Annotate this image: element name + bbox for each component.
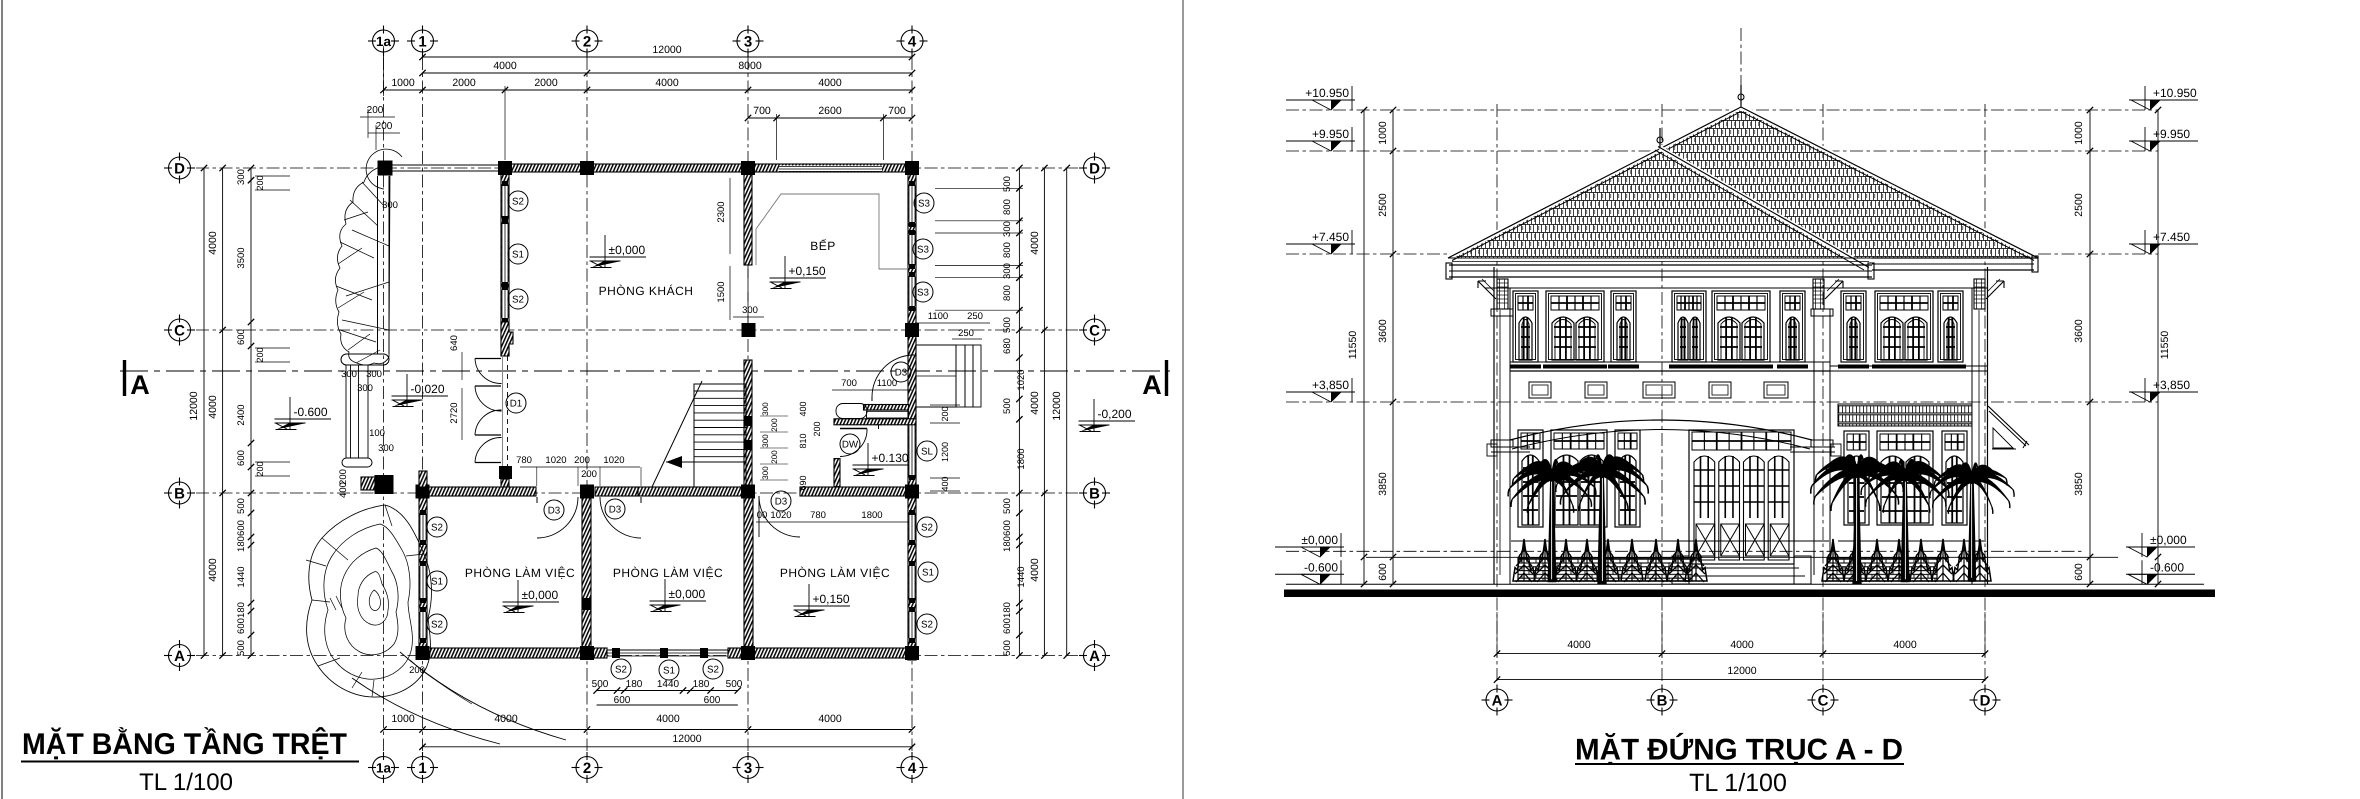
svg-text:1440: 1440 xyxy=(657,679,680,690)
svg-text:1000: 1000 xyxy=(2073,121,2085,145)
svg-text:4000: 4000 xyxy=(818,77,842,89)
svg-text:8000: 8000 xyxy=(738,60,762,72)
svg-text:200: 200 xyxy=(255,175,265,190)
svg-text:810: 810 xyxy=(798,433,808,448)
svg-text:S2: S2 xyxy=(431,523,443,534)
svg-text:4000: 4000 xyxy=(818,713,842,725)
svg-text:12000: 12000 xyxy=(188,391,200,420)
svg-text:±0,000: ±0,000 xyxy=(1301,533,1338,547)
svg-text:2: 2 xyxy=(583,760,591,777)
svg-text:DW: DW xyxy=(842,440,859,451)
svg-text:+3,850: +3,850 xyxy=(2153,378,2190,392)
svg-text:PHÒNG KHÁCH: PHÒNG KHÁCH xyxy=(599,284,694,298)
svg-text:700: 700 xyxy=(753,105,771,117)
svg-text:600: 600 xyxy=(1002,618,1013,634)
svg-text:12000: 12000 xyxy=(1051,391,1063,420)
svg-text:100: 100 xyxy=(369,428,385,439)
svg-text:+7.450: +7.450 xyxy=(1312,230,1349,244)
svg-text:3850: 3850 xyxy=(2073,472,2085,496)
svg-text:200: 200 xyxy=(812,421,822,436)
svg-text:300: 300 xyxy=(378,443,394,454)
svg-text:200: 200 xyxy=(409,665,425,676)
svg-text:PHÒNG LÀM VIỆC: PHÒNG LÀM VIỆC xyxy=(613,566,723,580)
svg-text:2720: 2720 xyxy=(449,402,460,423)
svg-text:2: 2 xyxy=(583,33,591,50)
svg-text:D: D xyxy=(1980,692,1991,709)
svg-text:3600: 3600 xyxy=(1377,319,1389,343)
svg-text:+10.950: +10.950 xyxy=(1305,86,1349,100)
svg-text:12000: 12000 xyxy=(1727,665,1756,677)
svg-text:A: A xyxy=(1142,370,1162,400)
svg-text:500: 500 xyxy=(592,679,609,690)
svg-text:D1: D1 xyxy=(510,399,523,410)
svg-text:TL 1/100: TL 1/100 xyxy=(1689,769,1787,797)
svg-text:250: 250 xyxy=(967,311,983,322)
svg-text:11550: 11550 xyxy=(1347,331,1359,360)
svg-text:400: 400 xyxy=(940,476,950,491)
svg-text:600: 600 xyxy=(1377,563,1389,581)
svg-text:+0.130: +0.130 xyxy=(872,451,909,465)
svg-text:4000: 4000 xyxy=(207,395,219,419)
svg-text:11550: 11550 xyxy=(2159,331,2171,360)
svg-text:2600: 2600 xyxy=(818,105,842,117)
svg-text:A: A xyxy=(174,648,185,665)
svg-text:1440: 1440 xyxy=(1016,566,1027,587)
svg-text:300: 300 xyxy=(761,434,770,448)
svg-text:300: 300 xyxy=(357,383,373,394)
svg-text:1000: 1000 xyxy=(391,77,415,89)
svg-text:4000: 4000 xyxy=(493,60,517,72)
svg-text:12000: 12000 xyxy=(672,733,701,745)
svg-text:4: 4 xyxy=(908,33,917,50)
svg-text:3600: 3600 xyxy=(2073,319,2085,343)
svg-text:A: A xyxy=(130,370,150,400)
svg-text:600: 600 xyxy=(614,695,631,706)
svg-text:MẶT BẰNG TẦNG TRỆT: MẶT BẰNG TẦNG TRỆT xyxy=(22,727,347,761)
svg-text:12000: 12000 xyxy=(652,44,681,56)
svg-text:1800: 1800 xyxy=(1016,448,1027,469)
svg-text:PHÒNG LÀM VIỆC: PHÒNG LÀM VIỆC xyxy=(780,566,890,580)
svg-text:2500: 2500 xyxy=(1377,193,1389,217)
svg-text:200: 200 xyxy=(770,418,779,432)
svg-text:S3: S3 xyxy=(918,199,931,210)
svg-text:±0,000: ±0,000 xyxy=(522,588,559,602)
svg-text:-0,020: -0,020 xyxy=(411,382,445,396)
svg-text:600: 600 xyxy=(2073,563,2085,581)
svg-text:2000: 2000 xyxy=(534,77,558,89)
svg-text:PHÒNG LÀM VIỆC: PHÒNG LÀM VIỆC xyxy=(465,566,575,580)
svg-text:4000: 4000 xyxy=(655,77,679,89)
svg-text:800: 800 xyxy=(1002,285,1013,301)
svg-text:B: B xyxy=(1089,485,1100,502)
svg-text:±0,000: ±0,000 xyxy=(669,587,706,601)
svg-text:S1: S1 xyxy=(663,666,675,677)
svg-text:200: 200 xyxy=(574,455,590,466)
svg-text:S2: S2 xyxy=(512,295,524,306)
svg-text:00: 00 xyxy=(757,510,768,521)
svg-text:500: 500 xyxy=(236,498,247,514)
svg-text:1100: 1100 xyxy=(877,378,897,389)
svg-text:250: 250 xyxy=(958,328,974,339)
svg-text:500: 500 xyxy=(236,640,247,656)
svg-text:500: 500 xyxy=(726,679,743,690)
svg-text:B: B xyxy=(1657,692,1668,709)
svg-text:+9.950: +9.950 xyxy=(2153,127,2190,141)
svg-text:1a: 1a xyxy=(376,760,392,775)
svg-text:1020: 1020 xyxy=(770,510,791,521)
svg-text:600: 600 xyxy=(236,329,247,345)
svg-text:TL 1/100: TL 1/100 xyxy=(139,769,233,796)
svg-text:680: 680 xyxy=(1002,338,1013,354)
svg-text:4: 4 xyxy=(908,760,917,777)
svg-text:1500: 1500 xyxy=(716,281,727,302)
svg-text:1: 1 xyxy=(418,760,426,777)
svg-text:180: 180 xyxy=(1002,602,1013,618)
svg-text:2500: 2500 xyxy=(2073,193,2085,217)
svg-text:S1: S1 xyxy=(512,250,524,261)
svg-text:S2: S2 xyxy=(921,620,933,631)
svg-text:200: 200 xyxy=(940,406,950,421)
svg-text:700: 700 xyxy=(888,105,906,117)
svg-text:C: C xyxy=(1089,322,1100,339)
svg-text:4000: 4000 xyxy=(1567,639,1591,651)
svg-text:S2: S2 xyxy=(615,665,627,676)
svg-text:1020: 1020 xyxy=(1016,369,1027,390)
svg-text:200: 200 xyxy=(770,450,779,464)
svg-text:4000: 4000 xyxy=(1029,391,1041,415)
svg-text:500: 500 xyxy=(1002,317,1013,333)
svg-text:3: 3 xyxy=(744,760,752,777)
svg-text:C: C xyxy=(1818,692,1829,709)
svg-text:4000: 4000 xyxy=(207,558,219,582)
svg-text:200: 200 xyxy=(367,105,384,116)
svg-text:180: 180 xyxy=(626,679,643,690)
svg-text:+10.950: +10.950 xyxy=(2153,86,2197,100)
svg-text:200: 200 xyxy=(255,347,265,362)
svg-text:4000: 4000 xyxy=(656,713,680,725)
svg-text:4000: 4000 xyxy=(1893,639,1917,651)
svg-text:500: 500 xyxy=(1002,498,1013,514)
svg-text:180: 180 xyxy=(236,536,247,552)
svg-text:1800: 1800 xyxy=(861,510,882,521)
svg-text:180: 180 xyxy=(1002,536,1013,552)
svg-text:-0.600: -0.600 xyxy=(1304,560,1338,574)
svg-text:3850: 3850 xyxy=(1377,472,1389,496)
svg-text:S1: S1 xyxy=(922,568,934,579)
svg-text:300: 300 xyxy=(341,369,357,380)
svg-text:1: 1 xyxy=(418,33,426,50)
svg-text:200: 200 xyxy=(255,461,265,476)
svg-text:2000: 2000 xyxy=(452,77,476,89)
svg-text:S2: S2 xyxy=(431,620,443,631)
svg-text:2400: 2400 xyxy=(236,404,247,425)
svg-text:4000: 4000 xyxy=(1029,558,1041,582)
svg-text:S3: S3 xyxy=(917,245,930,256)
svg-text:D3: D3 xyxy=(609,505,622,516)
svg-text:640: 640 xyxy=(449,335,460,351)
svg-text:3500: 3500 xyxy=(236,247,247,268)
svg-text:S1: S1 xyxy=(431,577,443,588)
svg-text:500: 500 xyxy=(1002,398,1013,414)
svg-text:S2: S2 xyxy=(921,523,933,534)
svg-text:300: 300 xyxy=(761,466,770,480)
svg-text:C: C xyxy=(174,322,185,339)
svg-text:MẶT ĐỨNG TRỤC A - D: MẶT ĐỨNG TRỤC A - D xyxy=(1575,733,1903,767)
svg-text:600: 600 xyxy=(704,695,721,706)
svg-text:300: 300 xyxy=(236,169,247,185)
svg-text:780: 780 xyxy=(516,455,532,466)
svg-text:±0,000: ±0,000 xyxy=(2150,533,2187,547)
svg-text:+9.950: +9.950 xyxy=(1312,127,1349,141)
svg-text:+3,850: +3,850 xyxy=(1312,378,1349,392)
svg-text:+0,150: +0,150 xyxy=(789,264,826,278)
svg-text:4000: 4000 xyxy=(1029,231,1041,255)
svg-text:690: 690 xyxy=(798,475,808,490)
svg-text:1020: 1020 xyxy=(545,455,566,466)
svg-text:180: 180 xyxy=(236,602,247,618)
svg-text:1020: 1020 xyxy=(603,455,624,466)
svg-text:S3: S3 xyxy=(917,288,930,299)
svg-text:500: 500 xyxy=(1002,640,1013,656)
svg-text:600: 600 xyxy=(236,450,247,466)
svg-text:1000: 1000 xyxy=(1377,121,1389,145)
svg-text:B: B xyxy=(174,485,185,502)
svg-text:600: 600 xyxy=(236,618,247,634)
svg-text:600: 600 xyxy=(1002,520,1013,536)
svg-text:-0,200: -0,200 xyxy=(1098,407,1132,421)
svg-text:180: 180 xyxy=(693,679,710,690)
svg-text:800: 800 xyxy=(1002,199,1013,215)
svg-text:1200: 1200 xyxy=(940,442,950,462)
svg-text:D3: D3 xyxy=(775,497,788,508)
svg-text:+7.450: +7.450 xyxy=(2153,230,2190,244)
svg-text:D3: D3 xyxy=(548,506,561,517)
svg-text:D3: D3 xyxy=(895,368,908,379)
svg-text:600: 600 xyxy=(236,520,247,536)
svg-text:D: D xyxy=(1089,160,1100,177)
svg-text:300: 300 xyxy=(761,402,770,416)
svg-text:1000: 1000 xyxy=(391,713,415,725)
svg-text:4000: 4000 xyxy=(1730,639,1754,651)
svg-text:+0,150: +0,150 xyxy=(813,592,850,606)
svg-text:400: 400 xyxy=(798,401,808,416)
svg-text:400: 400 xyxy=(338,482,349,498)
svg-text:800: 800 xyxy=(1002,242,1013,258)
svg-text:700: 700 xyxy=(841,378,857,389)
svg-text:1440: 1440 xyxy=(236,566,247,587)
svg-text:300: 300 xyxy=(742,305,758,316)
svg-text:±0,000: ±0,000 xyxy=(609,243,646,257)
svg-text:A: A xyxy=(1089,648,1100,665)
svg-text:3: 3 xyxy=(744,33,752,50)
svg-text:1100: 1100 xyxy=(928,311,948,322)
svg-text:300: 300 xyxy=(382,200,398,211)
svg-text:S2: S2 xyxy=(707,665,719,676)
svg-text:500: 500 xyxy=(1002,176,1013,192)
svg-text:300: 300 xyxy=(1002,221,1013,237)
svg-text:S2: S2 xyxy=(512,197,524,208)
svg-text:300: 300 xyxy=(366,369,382,380)
svg-text:200: 200 xyxy=(581,469,597,480)
svg-text:780: 780 xyxy=(810,510,826,521)
svg-text:-0.600: -0.600 xyxy=(2150,560,2184,574)
svg-text:D: D xyxy=(174,160,185,177)
svg-text:2300: 2300 xyxy=(716,201,727,222)
svg-text:4000: 4000 xyxy=(207,231,219,255)
svg-text:A: A xyxy=(1492,692,1503,709)
svg-text:-0.600: -0.600 xyxy=(294,405,328,419)
svg-text:200: 200 xyxy=(376,121,393,132)
svg-text:SL: SL xyxy=(921,447,934,458)
svg-text:BẾP: BẾP xyxy=(810,239,836,253)
